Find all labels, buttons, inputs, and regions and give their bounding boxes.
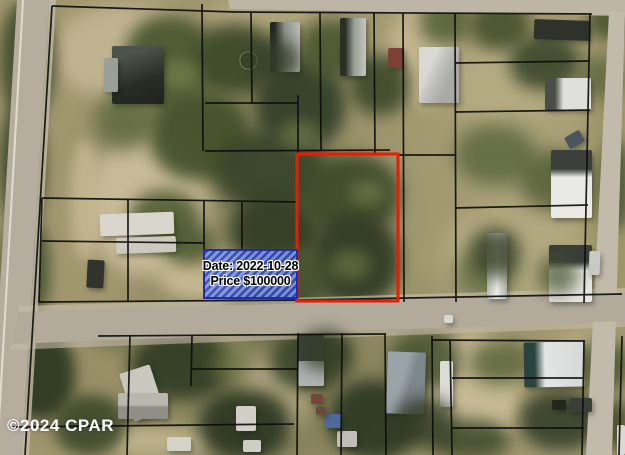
- parcel-boundaries: [0, 0, 625, 455]
- subject-parcel-outline: [297, 154, 398, 301]
- sale-date-label: Date: 2022-10-28: [203, 259, 298, 274]
- sale-price-label: Price $100000: [210, 274, 290, 289]
- aerial-map: Date: 2022-10-28 Price $100000 ©2024 CPA…: [0, 0, 625, 455]
- sold-parcel-overlay: Date: 2022-10-28 Price $100000: [203, 249, 298, 299]
- copyright-watermark: ©2024 CPAR: [7, 416, 114, 436]
- parcel-lines: [10, 4, 622, 455]
- sale-info-label: Date: 2022-10-28 Price $100000: [203, 259, 298, 289]
